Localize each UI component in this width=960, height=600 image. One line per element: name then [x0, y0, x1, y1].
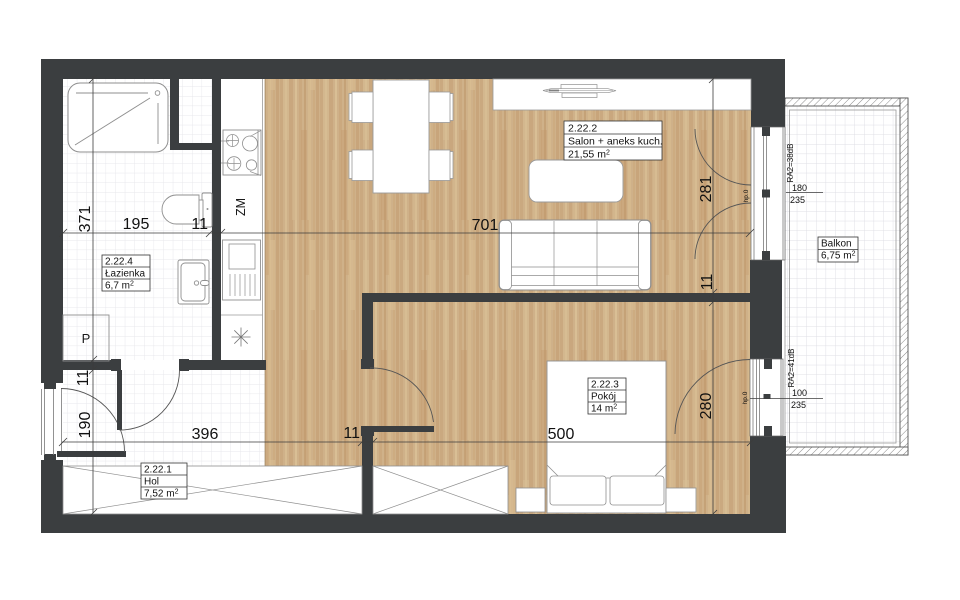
svg-text:Łazienka: Łazienka: [105, 269, 145, 280]
svg-text:235: 235: [791, 400, 806, 410]
svg-text:6,75 m2: 6,75 m2: [821, 251, 856, 262]
svg-text:Salon + aneks kuch.: Salon + aneks kuch.: [568, 136, 663, 148]
svg-text:11: 11: [699, 274, 716, 291]
svg-text:500: 500: [548, 426, 575, 443]
svg-text:11: 11: [191, 216, 208, 233]
svg-text:P: P: [82, 331, 91, 346]
svg-text:Hol: Hol: [144, 477, 159, 488]
svg-text:Pokój: Pokój: [591, 392, 616, 403]
svg-text:371: 371: [77, 206, 94, 233]
svg-text:11: 11: [343, 425, 360, 442]
svg-text:2.22.2: 2.22.2: [568, 123, 597, 135]
svg-text:ZM: ZM: [234, 198, 248, 216]
svg-text:hp.0: hp.0: [743, 189, 750, 202]
svg-text:701: 701: [472, 217, 499, 234]
svg-text:281: 281: [698, 176, 715, 203]
svg-text:195: 195: [123, 216, 150, 233]
svg-text:hp.0: hp.0: [742, 391, 749, 404]
svg-text:RA2=38dB: RA2=38dB: [786, 144, 795, 183]
svg-text:21,55 m2: 21,55 m2: [568, 149, 610, 161]
svg-text:190: 190: [77, 412, 94, 439]
svg-text:2.22.3: 2.22.3: [591, 380, 619, 391]
svg-text:11: 11: [75, 370, 92, 387]
svg-text:235: 235: [790, 195, 805, 205]
svg-text:280: 280: [698, 393, 715, 420]
svg-text:RA2=41dB: RA2=41dB: [787, 349, 796, 388]
svg-text:6,7 m2: 6,7 m2: [105, 281, 134, 292]
svg-text:180: 180: [792, 183, 807, 193]
svg-text:Balkon: Balkon: [821, 239, 852, 250]
svg-text:100: 100: [792, 388, 807, 398]
svg-text:2.22.4: 2.22.4: [105, 257, 133, 268]
svg-text:7,52 m2: 7,52 m2: [144, 489, 179, 500]
svg-text:396: 396: [192, 426, 219, 443]
svg-text:2.22.1: 2.22.1: [144, 465, 172, 476]
